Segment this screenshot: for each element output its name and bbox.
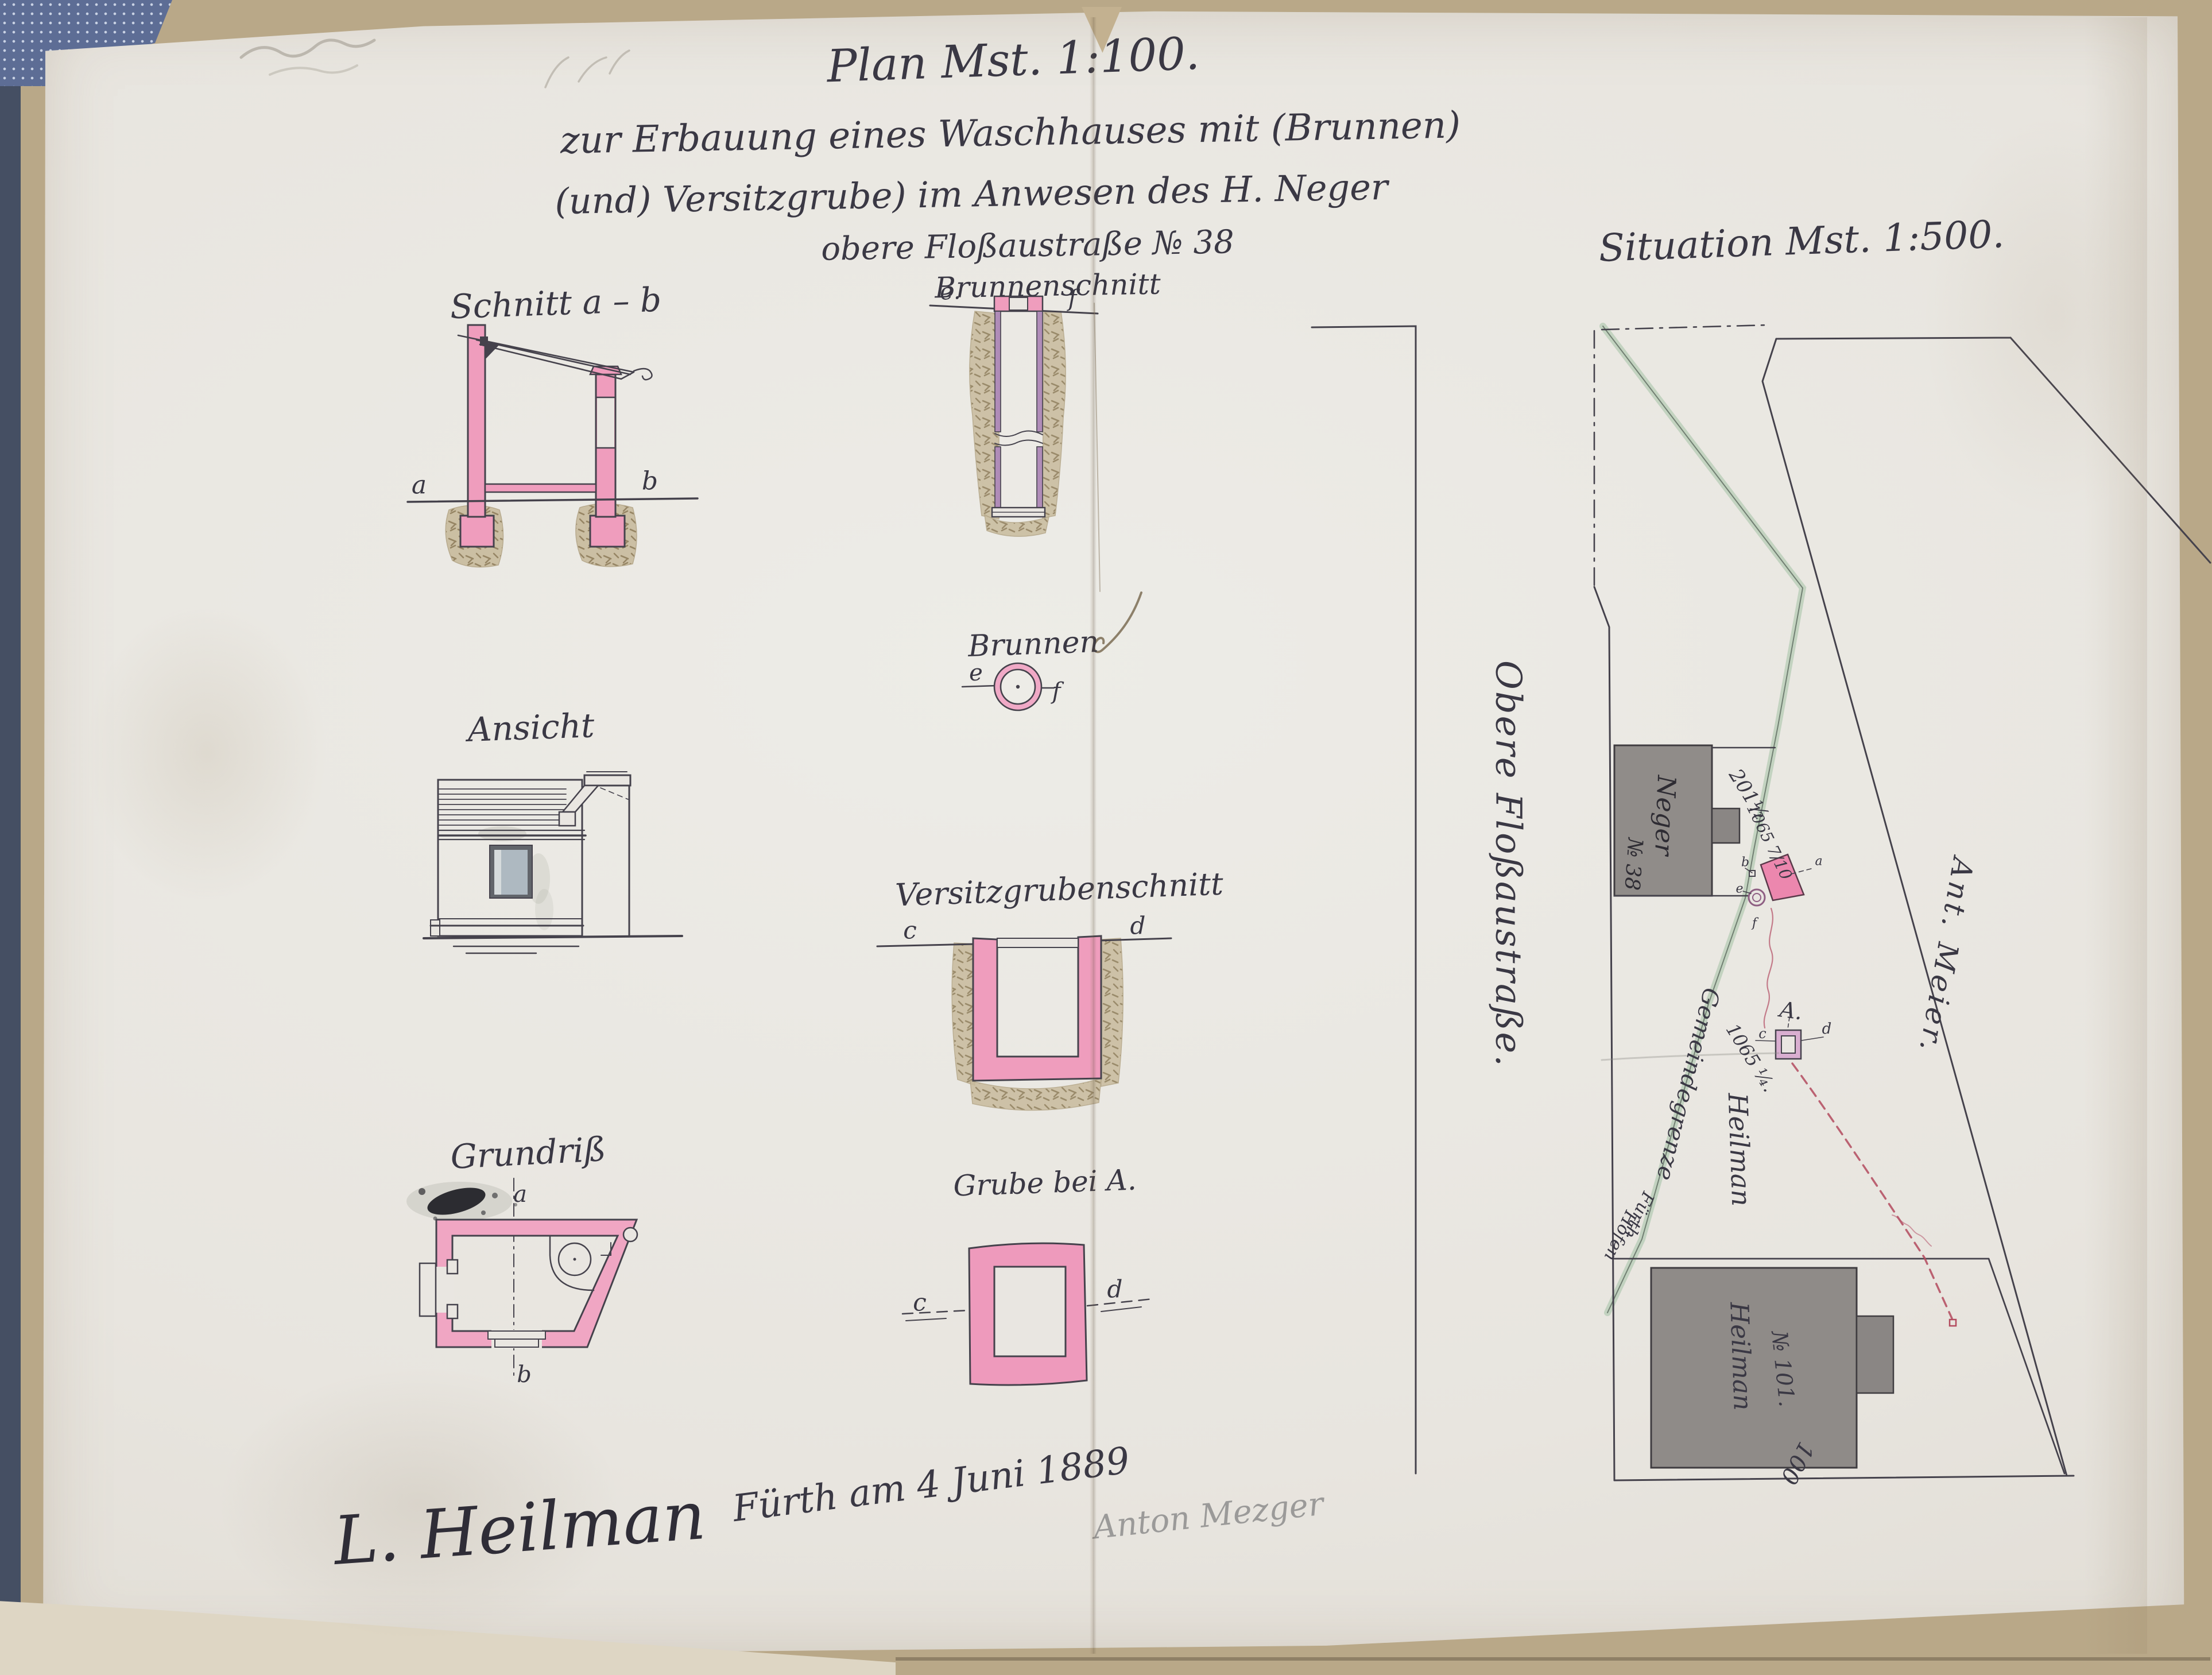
versitzgrube-drawing bbox=[877, 936, 1171, 1111]
schnitt-label: Schnitt a – b bbox=[450, 280, 662, 327]
brunnenschnitt-label: Brunnenschnitt bbox=[935, 268, 1161, 305]
brunnen-label: Brunnen bbox=[967, 625, 1099, 664]
red-annotation-squiggle bbox=[1764, 908, 1773, 1028]
versitzgrube-marker-c: c bbox=[903, 916, 917, 945]
street-name-label: Obere Floßaustraße. bbox=[1488, 660, 1530, 1068]
street-east-edge bbox=[1594, 587, 1614, 1480]
parcel-heilman-upper-label: Heilman bbox=[1722, 1092, 1757, 1206]
grundriss-marker-a: a bbox=[513, 1181, 527, 1208]
parcel-neger-label: Neger bbox=[1649, 775, 1681, 856]
scanned-plan-page: { "title": { "line1": "Plan Mst. 1:100."… bbox=[0, 0, 2212, 1675]
ansicht-drawing bbox=[424, 772, 682, 953]
brunnenschnitt-marker-e: e. bbox=[939, 278, 962, 305]
site-marker-e: e bbox=[1735, 882, 1743, 896]
parcel-heilman-lower-label: Heilman bbox=[1724, 1302, 1757, 1411]
grundriss-label: Grundriß bbox=[450, 1129, 607, 1177]
grube-marker-d: d bbox=[1107, 1275, 1123, 1303]
well-marker bbox=[1749, 889, 1765, 906]
binding-thread bbox=[1094, 303, 1141, 652]
ansicht-label: Ansicht bbox=[467, 706, 595, 749]
brunnen-marker-f: f bbox=[1052, 678, 1061, 705]
grube-marker-c: c bbox=[913, 1289, 927, 1317]
schnitt-marker-b: b bbox=[642, 467, 658, 496]
situation-plan-drawing bbox=[1312, 325, 2210, 1480]
red-annotation-squiggle bbox=[1892, 1215, 1931, 1246]
site-marker-a: a bbox=[1815, 854, 1822, 869]
pencil-scribble bbox=[241, 40, 629, 87]
pit-marker-d: d bbox=[1822, 1020, 1832, 1038]
schnitt-ab-drawing bbox=[408, 325, 698, 567]
pit-a-label: A. bbox=[1778, 996, 1804, 1024]
versitzgrube-marker-d: d bbox=[1130, 912, 1146, 940]
street-west-edge bbox=[1312, 326, 1416, 1473]
brunnenschnitt-marker-f: f bbox=[1068, 285, 1077, 312]
schnitt-marker-a: a bbox=[412, 471, 427, 500]
brunnenschnitt-drawing bbox=[930, 296, 1098, 536]
pit-marker-c: c bbox=[1758, 1026, 1766, 1042]
grube-label: Grube bei A. bbox=[953, 1163, 1137, 1202]
site-marker-f: f bbox=[1752, 916, 1757, 931]
grube-a-drawing bbox=[902, 1243, 1153, 1385]
site-marker-b: b bbox=[1741, 856, 1749, 870]
grundriss-drawing bbox=[406, 1178, 637, 1378]
grundriss-marker-b: b bbox=[517, 1361, 532, 1388]
parcel-neger-number: № 38 bbox=[1620, 837, 1647, 891]
brunnen-marker-e: e bbox=[969, 660, 983, 686]
title-line-4: obere Floßaustraße № 38 bbox=[821, 223, 1235, 268]
